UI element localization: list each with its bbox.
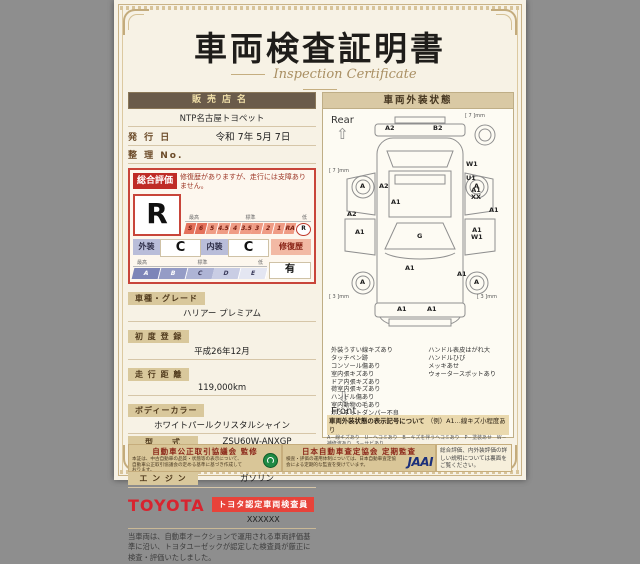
scale-cell: RA	[284, 223, 298, 234]
grade-scale-cells: S 6 5 4.5 4 3.5 3 2 1 RA R	[185, 223, 311, 236]
car-top-view-diagram: A2 B2 [ 7 ]mm [ 7 ]mm A A W1 U1 A2 A1 A2…	[339, 115, 501, 345]
fair-trade-council-section: 自動車公正取引協議会 監修 本証は、中古自動車の品質・状態等の表示について、自動…	[129, 445, 281, 471]
note-item: ウォータースポットあり	[428, 371, 511, 379]
jaai-text: 検査・評価の運用体制については、日本自動車査定協会による定期的な監査を受けていま…	[286, 457, 398, 468]
damage-code: A1	[405, 265, 415, 272]
spec-row-engine: エ ン ジ ン ガソリン	[128, 470, 316, 488]
dealer-name-header: 販売店名	[128, 92, 316, 109]
tire-tread-label: [ 3 ]mm	[329, 295, 349, 301]
issue-date-row: 発 行 日 令和 7年 5月 7日	[128, 127, 316, 146]
fair-trade-council-title: 自動車公正取引協議会 監修	[132, 446, 278, 457]
spec-value: ハリアー プレミアム	[128, 307, 316, 319]
jaai-logo: JAAI	[407, 455, 433, 469]
letter-cell: D	[212, 268, 242, 279]
damage-code: B2	[433, 125, 442, 132]
scale-label-max: 最高	[137, 259, 147, 266]
damage-code: A1	[355, 229, 365, 236]
damage-code: A1	[457, 271, 467, 278]
reference-no-row: 整 理 No.	[128, 146, 316, 164]
spec-row-model: 車種・グレード ハリアー プレミアム	[128, 284, 316, 322]
inspection-disclaimer: 当車両は、自動車オークションで運用される車両評価基準に沿い、トヨタユーゼックが認…	[128, 528, 316, 564]
spec-row-first-registration: 初 度 登 録 平成26年12月	[128, 322, 316, 360]
note-item: ハンドル傷あり	[331, 394, 428, 402]
tire-tread-label: [ 7 ]mm	[465, 114, 485, 120]
left-column: 販売店名 NTP名古屋トヨペット 発 行 日 令和 7年 5月 7日 整 理 N…	[128, 92, 316, 564]
spec-label: エ ン ジ ン	[128, 472, 198, 485]
eval-comment: 修復歴がありますが、走行には支障ありません。	[180, 173, 311, 192]
spec-label: ボディーカラー	[128, 404, 204, 417]
note-item: ハンドル表皮はがれ大	[428, 347, 511, 355]
damage-code: U1	[466, 175, 476, 182]
damage-code: A1	[391, 199, 401, 206]
wheel-grade: A	[360, 183, 365, 190]
grade-scale: 最高 標準 低 S 6 5 4.5 4 3.5 3 2 1 RA	[185, 214, 311, 236]
spec-row-mileage: 走 行 距 離 119,000km	[128, 360, 316, 396]
tire-tread-label: [ 3 ]mm	[477, 295, 497, 301]
damage-code: A1	[397, 306, 407, 313]
letter-cell: B	[158, 268, 188, 279]
interior-grade: C	[228, 239, 269, 257]
spec-value: ホワイトパールクリスタルシャイン	[128, 419, 316, 431]
damage-code: A2	[379, 183, 389, 190]
note-item: 外装うすい線キズあり	[331, 347, 428, 355]
damage-code: A2	[347, 211, 357, 218]
damage-code: A1	[427, 306, 437, 313]
inspector-name: XXXXXX	[211, 515, 316, 524]
frame-band-top	[120, 6, 520, 10]
spec-label: 車種・グレード	[128, 292, 205, 305]
damage-code: A1	[489, 207, 499, 214]
scale-label-std: 標準	[245, 214, 255, 221]
scale-label-low: 低	[258, 259, 263, 266]
spec-row-body-color: ボディーカラー ホワイトパールクリスタルシャイン	[128, 396, 316, 434]
overall-eval-label: 総合評価	[133, 173, 177, 189]
note-item: 室内張キズあり	[331, 371, 428, 379]
damage-code: A1 XX	[471, 187, 481, 201]
repair-history-value: 有	[269, 262, 311, 279]
fair-trade-council-text: 本証は、中古自動車の品質・状態等の表示について、自動車公正取引協議会の定める基準…	[132, 457, 244, 471]
legend-title: 車両外装状態の表示記号について	[329, 417, 425, 425]
evaluation-box: 総合評価 修復歴がありますが、走行には支障ありません。 R 最高 標準 低 S …	[128, 168, 316, 284]
certificate: 車両検査証明書 Inspection Certificate 販売店名 NTP名…	[114, 0, 526, 480]
letter-cell: A	[132, 268, 162, 279]
letter-cell: C	[185, 268, 215, 279]
reference-no-label: 整 理 No.	[128, 148, 190, 161]
exterior-condition-panel: 車両外装状態 Rear ⇧ ⇩ Front	[322, 92, 514, 438]
spec-label: 初 度 登 録	[128, 330, 189, 343]
scale-label-std: 標準	[197, 259, 207, 266]
note-item: 室内動物の毛あり	[331, 402, 428, 410]
note-item: ハンドルひび	[428, 355, 511, 363]
issue-date-value: 令和 7年 5月 7日	[190, 129, 316, 143]
spec-value: 119,000km	[128, 383, 316, 393]
damage-code: W1	[466, 161, 478, 168]
certified-inspector-badge: トヨタ認定車両検査員	[212, 497, 314, 512]
tire-tread-label: [ 7 ]mm	[329, 169, 349, 175]
fair-trade-council-logo-icon	[263, 453, 278, 468]
wheel-grade: A	[474, 279, 479, 286]
spec-value: 平成26年12月	[128, 345, 316, 357]
note-item: タッチペン跡	[331, 355, 428, 363]
jaai-section: 日本自動車査定協会 定期監査 検査・評価の運用体制については、日本自動車査定協会…	[283, 445, 435, 471]
letter-cell: E	[239, 268, 269, 279]
condition-notes: 外装うすい線キズあり タッチペン跡 コンソール傷あり 室内張キズあり ドア内張キ…	[331, 347, 511, 426]
toyota-logo: TOYOTA	[128, 492, 205, 515]
exterior-grade: C	[160, 239, 201, 257]
note-item: メッキあせ	[428, 363, 511, 371]
see-reverse-note: 総合評価、内外装評価の詳しい説明については裏面をご覧ください。	[437, 445, 511, 471]
certificate-title: 車両検査証明書	[114, 22, 526, 70]
damage-code: G	[417, 233, 422, 240]
damage-code: A2	[385, 125, 395, 132]
interior-label: 内装	[201, 239, 228, 255]
exterior-label: 外装	[133, 239, 160, 255]
scale-cell-selected: R	[296, 223, 311, 236]
wheel-grade: A	[360, 279, 365, 286]
issue-date-label: 発 行 日	[128, 130, 190, 143]
damage-code: A1 W1	[471, 227, 483, 241]
letter-scale-cells: A B C D E	[133, 268, 267, 279]
scale-label-low: 低	[302, 214, 307, 221]
inspector-block: TOYOTA トヨタ認定車両検査員 XXXXXX	[128, 488, 316, 526]
dealer-name: NTP名古屋トヨペット	[128, 109, 316, 127]
scale-label-max: 最高	[189, 214, 199, 221]
spec-label: 走 行 距 離	[128, 368, 189, 381]
letter-scale: 最高 標準 低 A B C D E	[133, 259, 267, 279]
exterior-condition-header: 車両外装状態	[323, 93, 513, 109]
footer-bar: 自動車公正取引協議会 監修 本証は、中古自動車の品質・状態等の表示について、自動…	[128, 444, 512, 472]
note-item: コンソール傷あり	[331, 363, 428, 371]
repair-history-label: 修復歴	[271, 239, 311, 255]
overall-grade: R	[133, 194, 181, 236]
spec-value: ガソリン	[198, 472, 316, 484]
